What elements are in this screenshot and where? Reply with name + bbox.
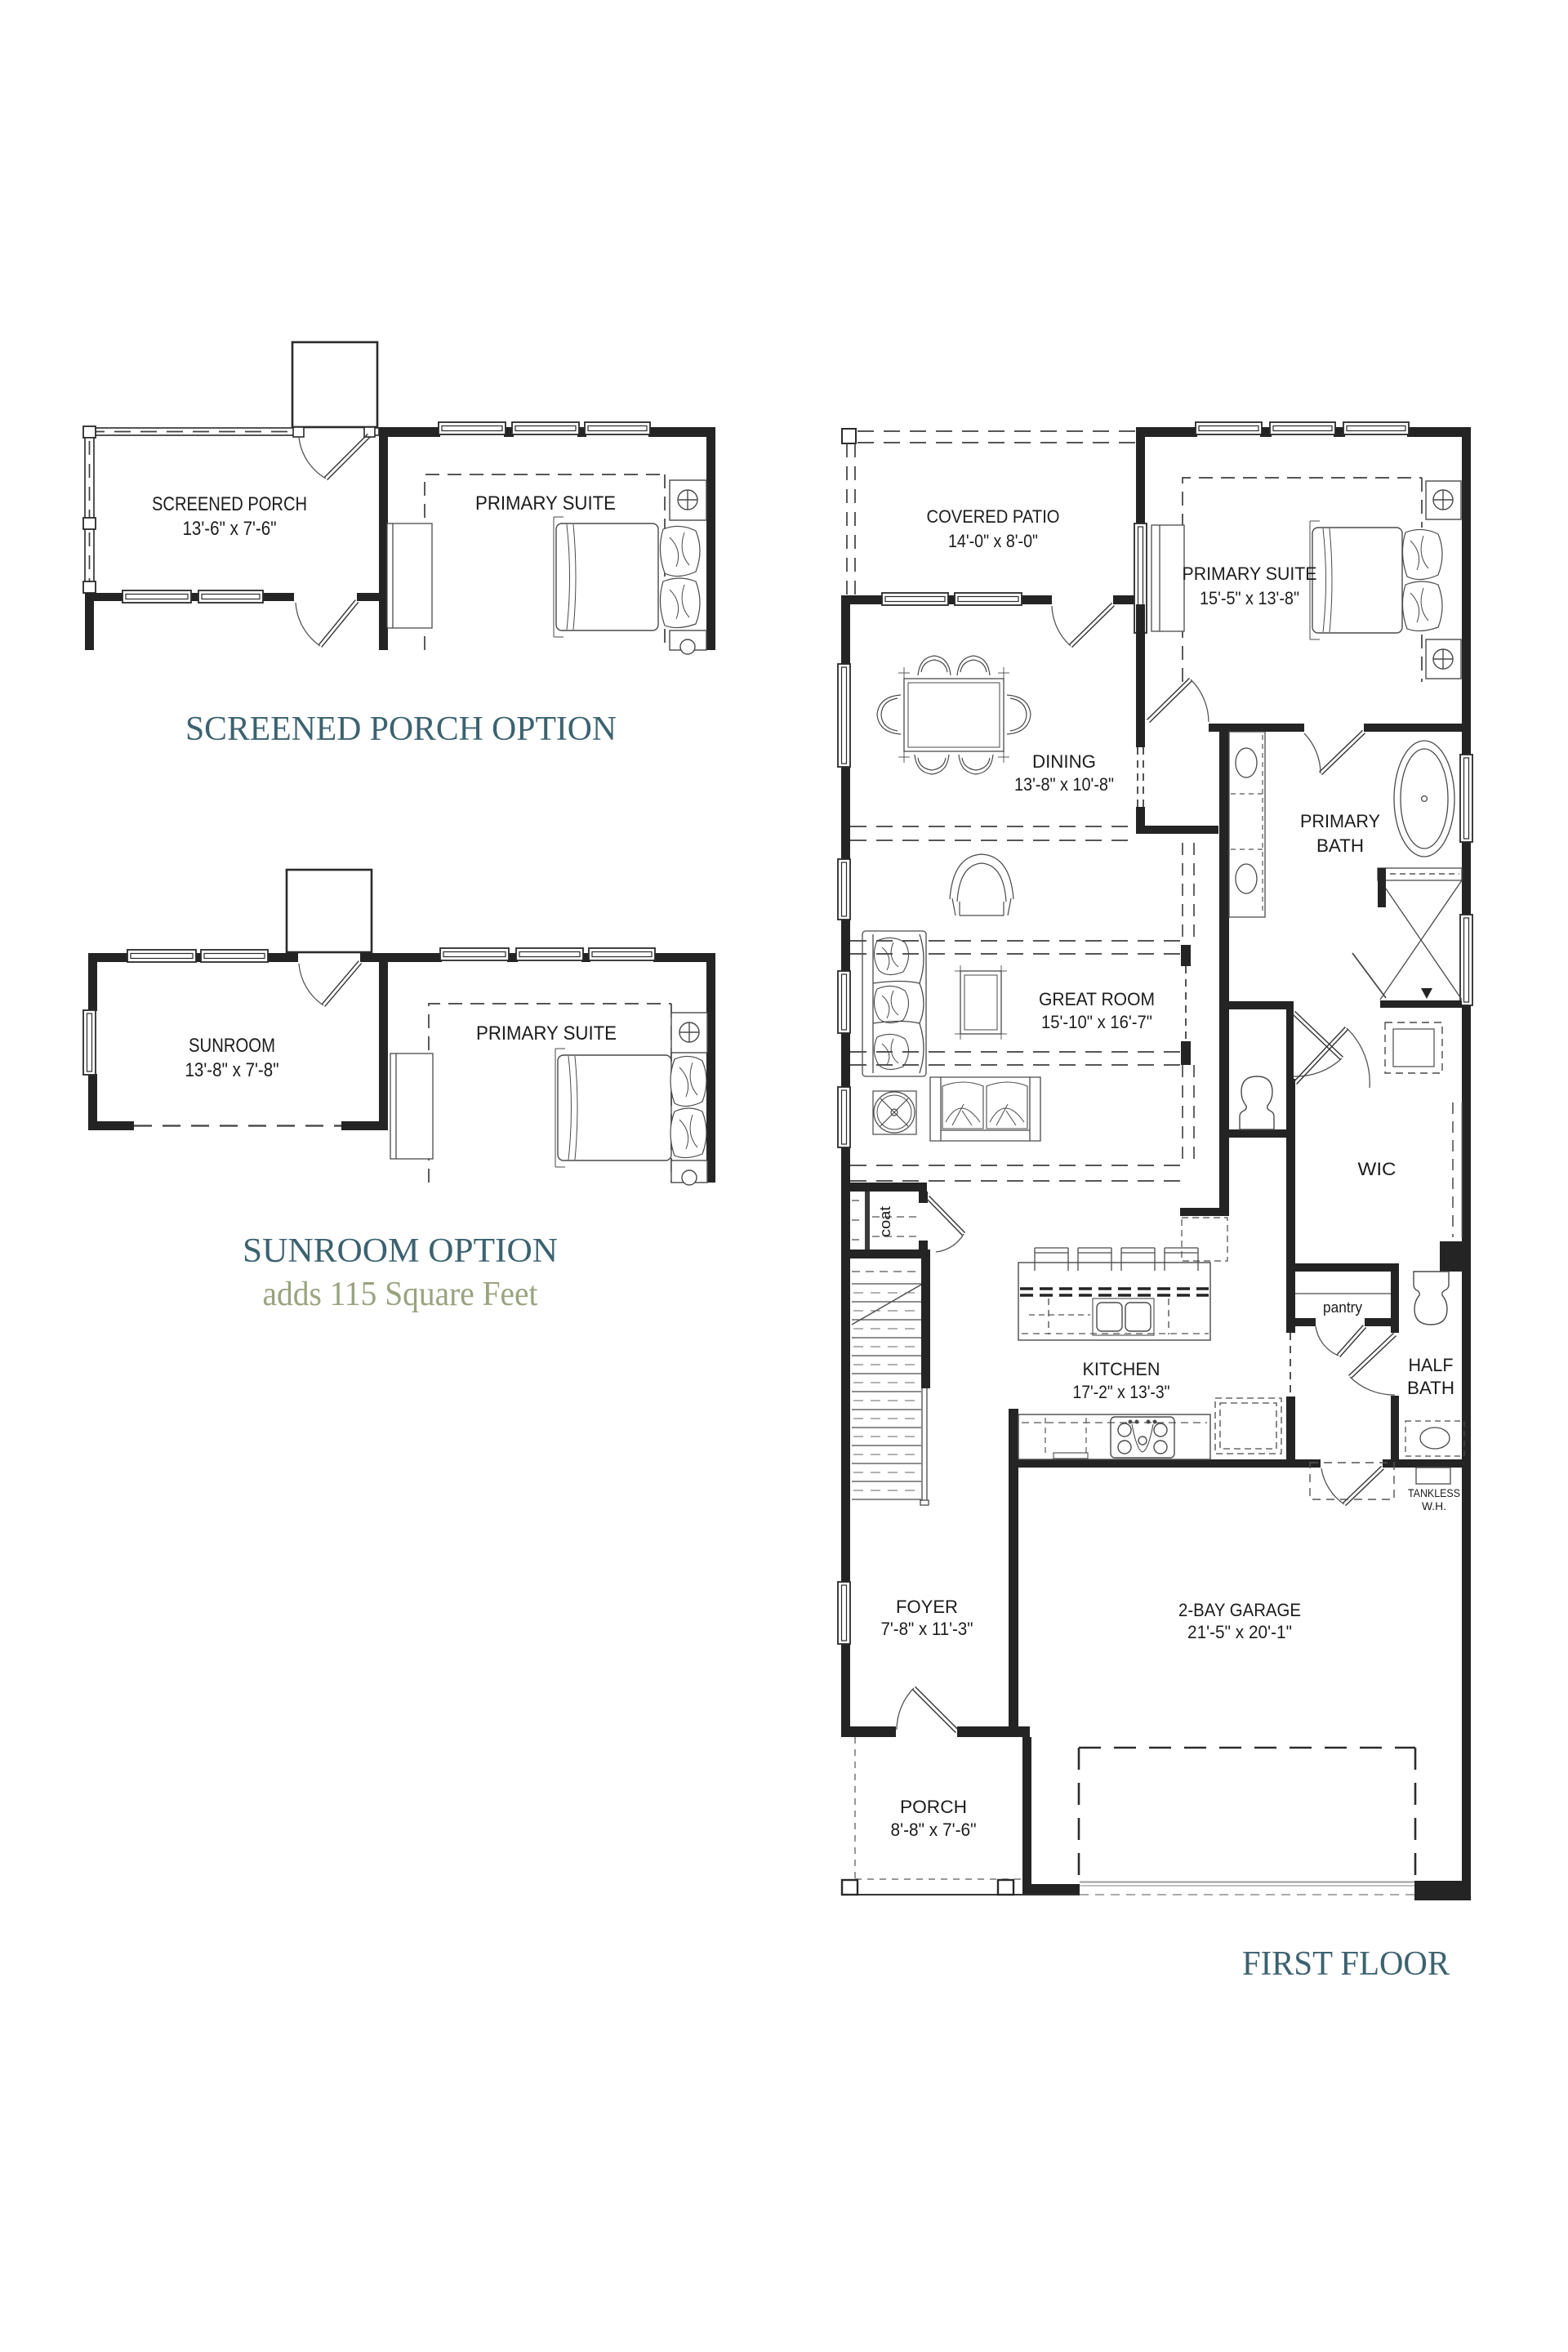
svg-text:SCREENED PORCH OPTION: SCREENED PORCH OPTION [185, 710, 617, 748]
svg-text:PRIMARY SUITE: PRIMARY SUITE [476, 1022, 617, 1045]
svg-text:13'-6" x 7'-6": 13'-6" x 7'-6" [183, 518, 277, 540]
svg-text:W.H.: W.H. [1422, 1499, 1446, 1512]
svg-text:PRIMARY: PRIMARY [1300, 811, 1380, 831]
svg-text:2-BAY GARAGE: 2-BAY GARAGE [1178, 1600, 1301, 1620]
svg-text:GREAT ROOM: GREAT ROOM [1039, 989, 1155, 1009]
svg-text:FIRST FLOOR: FIRST FLOOR [1242, 1945, 1450, 1983]
svg-text:BATH: BATH [1407, 1378, 1454, 1398]
svg-text:21'-5" x 20'-1": 21'-5" x 20'-1" [1187, 1622, 1292, 1642]
svg-text:PRIMARY SUITE: PRIMARY SUITE [475, 492, 616, 514]
svg-text:BATH: BATH [1316, 835, 1364, 856]
svg-text:pantry: pantry [1323, 1299, 1362, 1316]
svg-text:WIC: WIC [1358, 1159, 1396, 1179]
svg-text:7'-8" x 11'-3": 7'-8" x 11'-3" [881, 1619, 973, 1639]
svg-text:PRIMARY SUITE: PRIMARY SUITE [1183, 563, 1317, 584]
svg-text:15'-5" x 13'-8": 15'-5" x 13'-8" [1200, 588, 1299, 608]
svg-text:DINING: DINING [1032, 751, 1096, 772]
svg-text:17'-2" x 13'-3": 17'-2" x 13'-3" [1073, 1382, 1170, 1402]
svg-text:COVERED PATIO: COVERED PATIO [927, 506, 1060, 527]
svg-text:adds 115 Square Feet: adds 115 Square Feet [263, 1276, 538, 1313]
svg-text:13'-8" x 7'-8": 13'-8" x 7'-8" [185, 1059, 279, 1081]
svg-text:SUNROOM: SUNROOM [189, 1035, 275, 1057]
svg-text:PORCH: PORCH [900, 1797, 967, 1817]
svg-text:KITCHEN: KITCHEN [1083, 1359, 1160, 1379]
svg-text:SCREENED PORCH: SCREENED PORCH [152, 493, 307, 515]
svg-text:13'-8" x 10'-8": 13'-8" x 10'-8" [1014, 774, 1114, 795]
svg-text:TANKLESS: TANKLESS [1408, 1486, 1460, 1499]
svg-text:coat: coat [877, 1206, 893, 1237]
svg-text:HALF: HALF [1409, 1355, 1454, 1375]
svg-text:15'-10" x 16'-7": 15'-10" x 16'-7" [1041, 1012, 1152, 1032]
svg-text:SUNROOM OPTION: SUNROOM OPTION [243, 1232, 558, 1270]
svg-text:14'-0" x 8'-0": 14'-0" x 8'-0" [948, 531, 1038, 551]
svg-text:FOYER: FOYER [896, 1597, 958, 1617]
svg-text:8'-8" x 7'-6": 8'-8" x 7'-6" [891, 1820, 977, 1840]
